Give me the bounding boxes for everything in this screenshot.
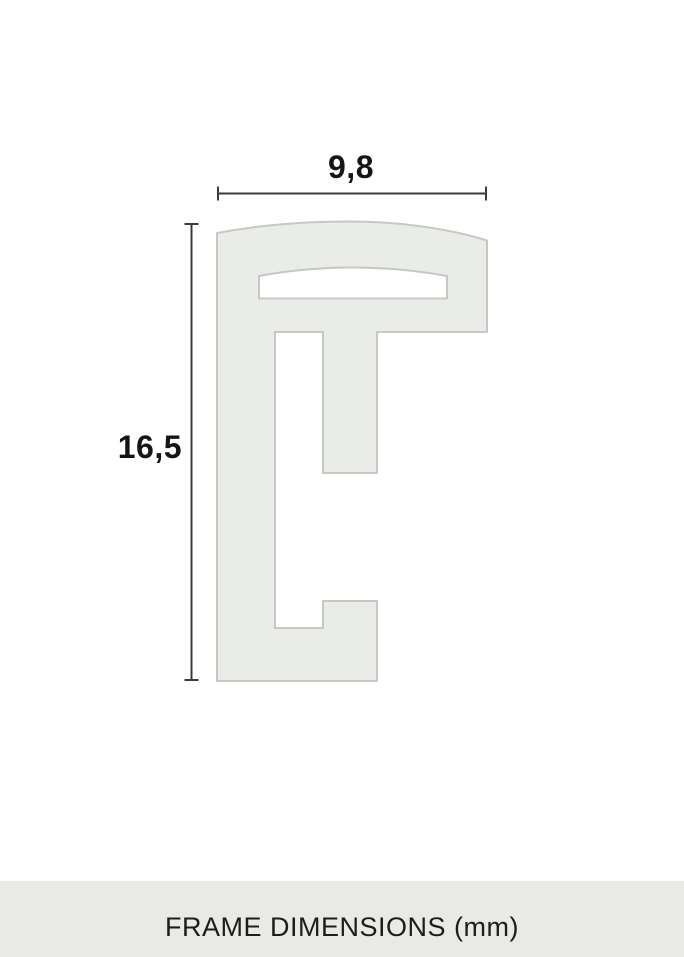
- profile-drawing: [0, 0, 684, 957]
- width-dimension-line: [218, 187, 486, 201]
- height-dimension-label: 16,5: [62, 429, 182, 466]
- caption-text: FRAME DIMENSIONS (mm): [0, 881, 684, 941]
- caption-band: FRAME DIMENSIONS (mm): [0, 881, 684, 957]
- frame-dimensions-diagram: 9,8 16,5 FRAME DIMENSIONS (mm): [0, 0, 684, 957]
- frame-profile-shape: [217, 222, 487, 682]
- width-dimension-label: 9,8: [291, 149, 411, 186]
- height-dimension-line: [185, 224, 199, 680]
